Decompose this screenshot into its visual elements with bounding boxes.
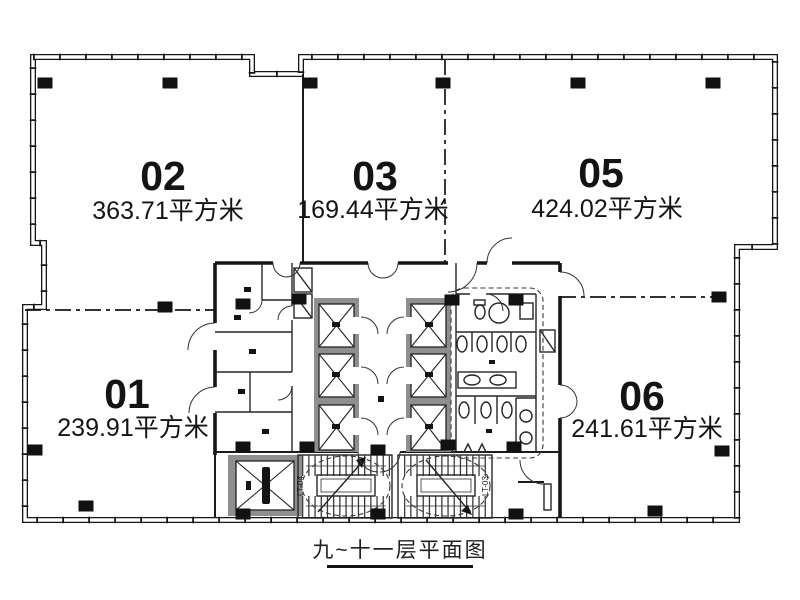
floor-plan: LT-04 LT-03 — [0, 0, 800, 600]
unit-06-number: 06 — [619, 373, 665, 419]
unit-03-number: 03 — [352, 153, 398, 199]
elevator-bank-right — [378, 298, 451, 452]
fire-elevator — [228, 455, 302, 516]
toilet-zone — [451, 263, 555, 458]
unit-05-area: 424.02平方米 — [531, 195, 682, 223]
unit-03-area: 169.44平方米 — [297, 196, 448, 224]
caption: 九~十一层平面图 — [312, 539, 487, 562]
exterior-walls — [25, 57, 775, 520]
unit-01-area: 239.91平方米 — [57, 414, 208, 442]
stair-label-lt04: LT-04 — [296, 476, 305, 496]
core-service-rooms — [215, 263, 312, 452]
wc-stalls — [459, 396, 512, 424]
unit-01-number: 01 — [104, 371, 150, 417]
unit-02-number: 02 — [140, 153, 186, 199]
columns — [28, 78, 730, 520]
stair-label-lt03: LT-03 — [481, 476, 490, 496]
unit-05-number: 05 — [578, 150, 624, 196]
stair-lt-03: LT-03 — [398, 455, 492, 518]
elevator-bank-left — [314, 298, 378, 452]
caption-block: 九~十一层平面图 — [312, 539, 487, 568]
urinal-row — [457, 332, 526, 352]
unit-02-area: 363.71平方米 — [92, 197, 243, 225]
unit-06-area: 241.61平方米 — [571, 415, 722, 443]
